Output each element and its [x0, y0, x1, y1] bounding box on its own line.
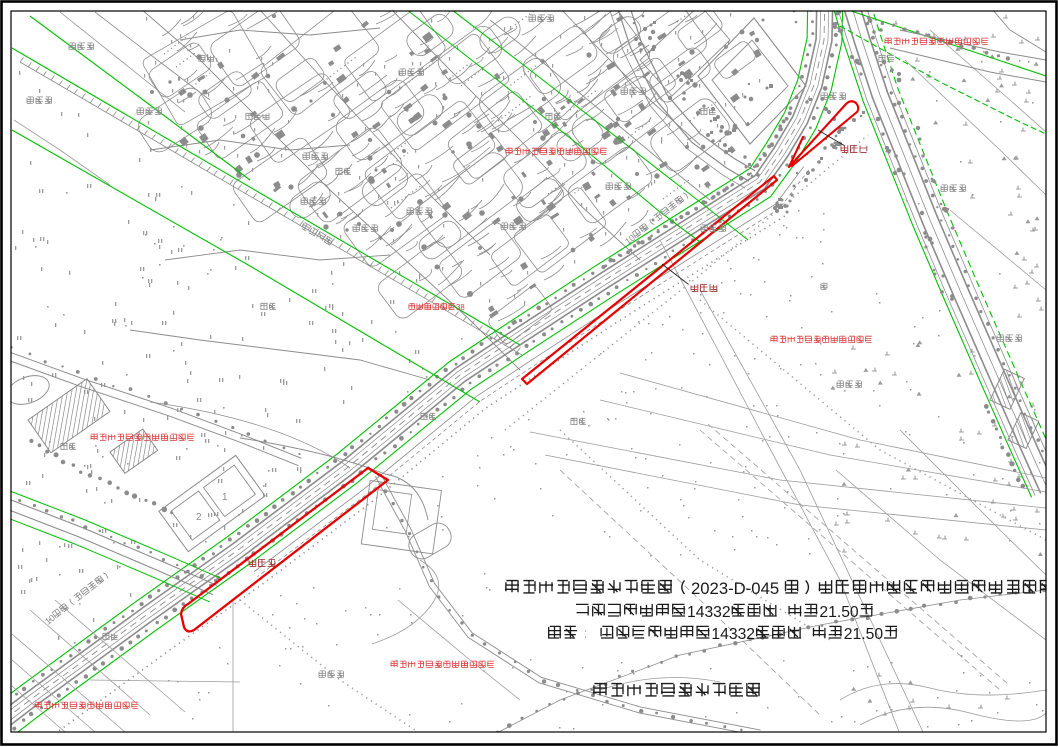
svg-text:38: 38: [456, 303, 465, 312]
svg-text:1: 1: [222, 492, 228, 503]
svg-text:2: 2: [196, 512, 202, 523]
svg-text:2023-D-045: 2023-D-045: [691, 579, 779, 598]
svg-text:14332: 14332: [711, 626, 755, 643]
svg-text:21.50: 21.50: [819, 604, 859, 621]
svg-text:14332: 14332: [687, 604, 731, 621]
svg-text:21.50: 21.50: [844, 626, 884, 643]
